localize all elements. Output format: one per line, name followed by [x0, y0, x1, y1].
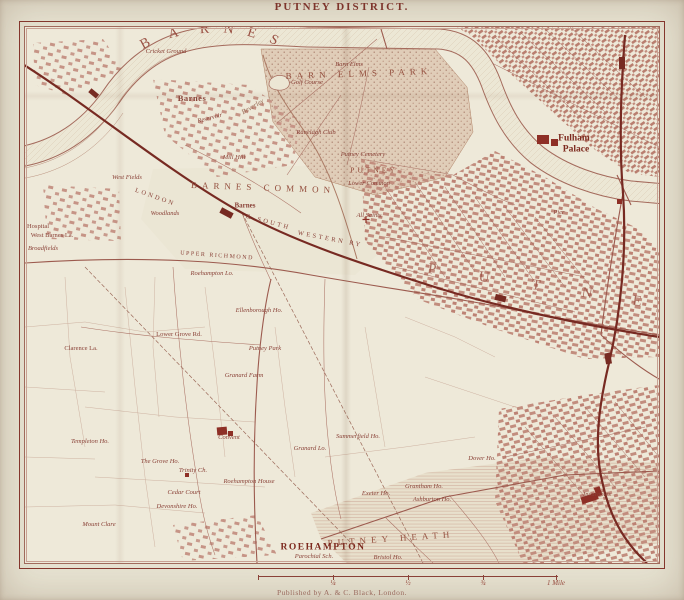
map-drawing [25, 27, 659, 563]
publisher-credit: Published by A. & C. Black, London. [0, 588, 684, 597]
scale-tick: 1 Mile [556, 575, 557, 580]
scale-tick-label: 1 Mile [547, 579, 565, 587]
scale-tick-label: ¾ [480, 579, 485, 587]
scale-tick [258, 575, 259, 580]
scale-tick: ½ [408, 575, 409, 580]
scale-tick: ¾ [483, 575, 484, 580]
scale-tick-label: ¼ [330, 579, 335, 587]
page-title: PUTNEY DISTRICT. [0, 1, 684, 13]
map-page: PUTNEY DISTRICT. [0, 0, 684, 600]
scale-tick-label: ½ [405, 579, 410, 587]
scale-tick: ¼ [333, 575, 334, 580]
map-frame: BARNESPUTNEBARN ELMS PARKBARNES COMMONPU… [24, 26, 660, 564]
barn-elms-lake [269, 75, 289, 90]
